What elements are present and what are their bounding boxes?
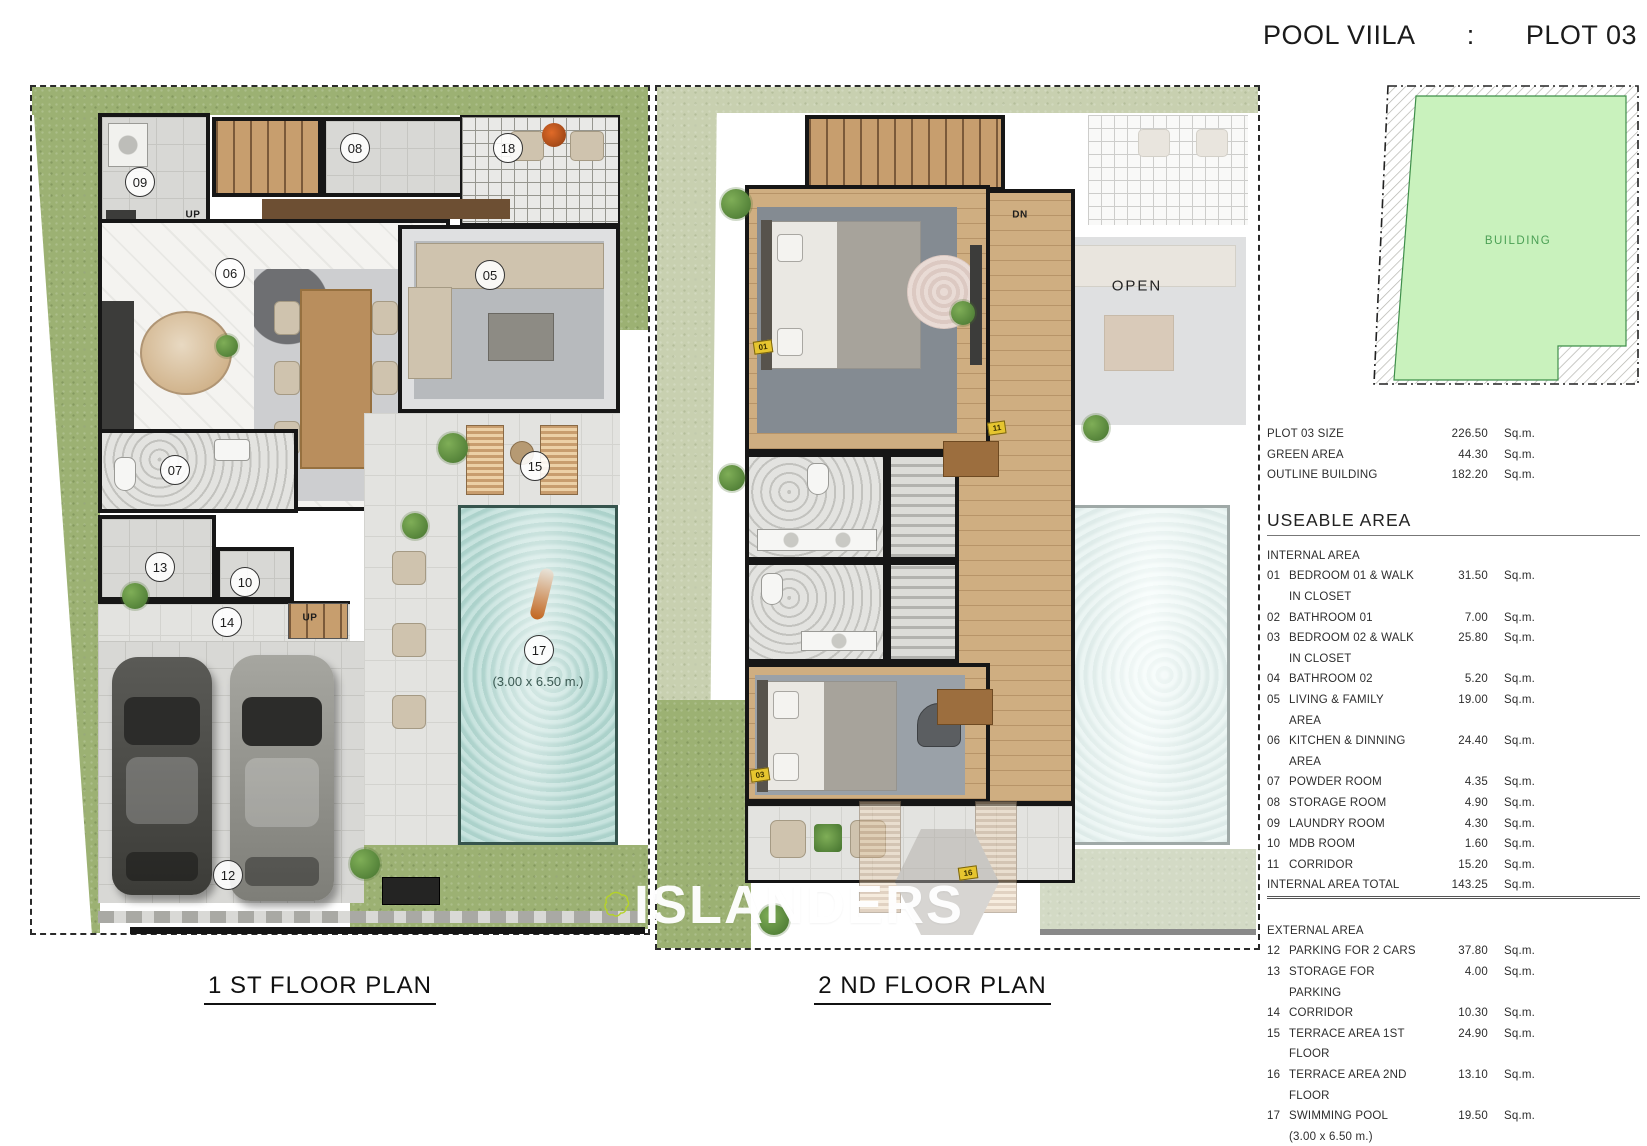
second-floor-label: 2 ND FLOOR PLAN xyxy=(760,972,1105,1005)
car-windshield xyxy=(124,697,200,745)
plant xyxy=(122,583,148,609)
deck-armchair xyxy=(392,551,426,585)
room-marker: UP xyxy=(186,210,201,221)
area-row: 07POWDER ROOM4.35Sq.m. xyxy=(1267,772,1640,793)
plant xyxy=(719,465,745,491)
pool-dimensions: (3.00 x 6.50 m.) xyxy=(461,674,615,689)
room-marker: 16 xyxy=(958,865,979,881)
outdoor-seat xyxy=(570,131,604,161)
ghost-living xyxy=(1046,237,1246,425)
room-marker: 17 xyxy=(524,635,554,665)
floor-plan-sheet: POOL VIILA : PLOT 03 xyxy=(0,0,1647,1146)
first-floor-plan: 17 (3.00 x 6.50 m.) 09UP0818060507131014… xyxy=(30,85,650,935)
washing-machine xyxy=(108,123,148,167)
pool-deck xyxy=(364,505,458,845)
plant xyxy=(951,301,975,325)
area-row: 09LAUNDRY ROOM4.30Sq.m. xyxy=(1267,814,1640,835)
sofa xyxy=(416,243,604,289)
dining-chair xyxy=(372,361,398,395)
terrace-armchair xyxy=(770,820,806,858)
site-key-svg: BUILDING xyxy=(1368,84,1640,386)
deck-chair xyxy=(466,425,504,495)
dining-chair xyxy=(274,301,300,335)
first-floor-label: 1 ST FLOOR PLAN xyxy=(150,972,490,1005)
bbq-grill xyxy=(382,877,440,905)
room-marker: DN xyxy=(1012,210,1027,221)
ghost-terrace xyxy=(855,725,1041,935)
boundary-wall xyxy=(130,927,645,934)
plant xyxy=(350,849,380,879)
dining-chair xyxy=(372,301,398,335)
ghost-pool xyxy=(1068,505,1230,845)
area-row: 03BEDROOM 02 & WALK IN CLOSET25.80Sq.m. xyxy=(1267,628,1640,669)
toilet xyxy=(761,573,783,605)
area-row: 15TERRACE AREA 1ST FLOOR24.90Sq.m. xyxy=(1267,1024,1640,1065)
ghost-table xyxy=(1104,315,1174,371)
area-row: 16TERRACE AREA 2ND FLOOR13.10Sq.m. xyxy=(1267,1065,1640,1106)
area-row: 04BATHROOM 025.20Sq.m. xyxy=(1267,669,1640,690)
sink xyxy=(214,439,250,461)
living-family-05 xyxy=(398,225,620,413)
pillow xyxy=(777,234,803,262)
title-project: POOL VIILA xyxy=(1263,20,1416,51)
car-rear-window xyxy=(245,857,320,887)
outdoor-seat xyxy=(1196,129,1228,157)
desk xyxy=(937,689,993,725)
car xyxy=(230,655,334,901)
grass-top xyxy=(657,87,1258,113)
room-marker: 05 xyxy=(475,260,505,290)
internal-area-label: INTERNAL AREA xyxy=(1267,546,1640,567)
area-row: 17SWIMMING POOL (3.00 x 6.50 m.)19.50Sq.… xyxy=(1267,1106,1640,1146)
summary-row: OUTLINE BUILDING182.20Sq.m. xyxy=(1267,465,1640,486)
toilet xyxy=(807,463,829,495)
outdoor-seat xyxy=(1138,129,1170,157)
pillow xyxy=(773,753,799,781)
room-marker: 07 xyxy=(160,455,190,485)
internal-area-total: INTERNAL AREA TOTAL 143.25 Sq.m. xyxy=(1267,875,1640,899)
toilet xyxy=(114,457,136,491)
deck-armchair xyxy=(392,623,426,657)
car-roof xyxy=(126,757,198,824)
plant xyxy=(438,433,468,463)
car-roof xyxy=(245,758,320,827)
plant xyxy=(759,905,789,935)
walk-in-closet xyxy=(887,561,959,663)
deck-armchair xyxy=(392,695,426,729)
driveway-dashes xyxy=(98,911,643,923)
plant xyxy=(216,335,238,357)
console-cabinet xyxy=(262,199,510,219)
bed xyxy=(771,221,921,369)
area-row: 10MDB ROOM1.60Sq.m. xyxy=(1267,834,1640,855)
second-floor-plan: DNOPEN01110316 xyxy=(655,85,1260,950)
swimming-pool-17: 17 (3.00 x 6.50 m.) xyxy=(458,505,618,845)
terrace-15 xyxy=(364,413,620,505)
desk xyxy=(943,441,999,477)
dining-chair xyxy=(274,361,300,395)
room-marker: UP xyxy=(303,613,318,624)
dining-table xyxy=(300,289,372,469)
summary-row: GREEN AREA44.30Sq.m. xyxy=(1267,445,1640,466)
powder-room-07 xyxy=(98,429,298,513)
vanity-sink xyxy=(801,631,877,651)
pool-float xyxy=(529,567,555,621)
plot-summary: PLOT 03 SIZE226.50Sq.m. GREEN AREA44.30S… xyxy=(1267,424,1640,486)
room-marker: OPEN xyxy=(1112,278,1163,295)
room-marker: 06 xyxy=(215,258,245,288)
room-marker: 10 xyxy=(230,567,260,597)
staircase-down xyxy=(805,115,1005,191)
deck-chair xyxy=(859,801,901,913)
internal-area-list: 01BEDROOM 01 & WALK IN CLOSET31.50Sq.m. … xyxy=(1267,566,1640,875)
useable-area-header: USEABLE AREA xyxy=(1267,510,1640,536)
bathroom-02 xyxy=(745,561,887,663)
pillow xyxy=(773,691,799,719)
ghost-washing-area xyxy=(1088,115,1248,225)
area-data-panel: PLOT 03 SIZE226.50Sq.m. GREEN AREA44.30S… xyxy=(1267,424,1640,1146)
room-marker: 12 xyxy=(213,860,243,890)
area-row: 11CORRIDOR15.20Sq.m. xyxy=(1267,855,1640,876)
room-marker: 13 xyxy=(145,552,175,582)
staircase-up xyxy=(212,117,322,197)
area-row: 08STORAGE ROOM4.90Sq.m. xyxy=(1267,793,1640,814)
vanity-double-sink xyxy=(757,529,877,551)
area-row: 01BEDROOM 01 & WALK IN CLOSET31.50Sq.m. xyxy=(1267,566,1640,607)
car-rear-window xyxy=(126,852,198,881)
room-marker: 14 xyxy=(212,607,242,637)
area-row: 13STORAGE FOR PARKING4.00Sq.m. xyxy=(1267,962,1640,1003)
summary-row: PLOT 03 SIZE226.50Sq.m. xyxy=(1267,424,1640,445)
grass-bottom-left xyxy=(657,700,751,948)
outdoor-table xyxy=(542,123,566,147)
coffee-table xyxy=(488,313,554,361)
room-marker: 01 xyxy=(753,339,774,355)
area-row: 14CORRIDOR10.30Sq.m. xyxy=(1267,1003,1640,1024)
room-marker: 18 xyxy=(493,133,523,163)
area-row: 06KITCHEN & DINNING AREA24.40Sq.m. xyxy=(1267,731,1640,772)
plant xyxy=(721,189,751,219)
pillow xyxy=(777,328,803,356)
room-marker: 03 xyxy=(750,767,771,783)
grass-top-right xyxy=(618,87,648,330)
title-plot: PLOT 03 xyxy=(1526,20,1637,51)
bathroom-01 xyxy=(745,453,887,561)
car xyxy=(112,657,212,895)
external-area-list: 12PARKING FOR 2 CARS37.80Sq.m. 13STORAGE… xyxy=(1267,941,1640,1146)
entry-steps xyxy=(288,603,348,639)
car-windshield xyxy=(242,697,321,746)
sheet-title: POOL VIILA : PLOT 03 xyxy=(1263,20,1637,51)
grass-top xyxy=(32,87,648,115)
boundary-wall xyxy=(1040,929,1256,935)
plant xyxy=(1083,415,1109,441)
title-separator: : xyxy=(1467,20,1475,51)
room-marker: 11 xyxy=(987,420,1007,435)
building-footprint-label: BUILDING xyxy=(1485,235,1551,247)
room-marker: 15 xyxy=(520,451,550,481)
plant xyxy=(402,513,428,539)
area-row: 02BATHROOM 017.00Sq.m. xyxy=(1267,608,1640,629)
external-area-label: EXTERNAL AREA xyxy=(1267,921,1640,942)
area-row: 12PARKING FOR 2 CARS37.80Sq.m. xyxy=(1267,941,1640,962)
area-row: 05LIVING & FAMILY AREA19.00Sq.m. xyxy=(1267,690,1640,731)
room-marker: 08 xyxy=(340,133,370,163)
terrace-plant-table xyxy=(814,824,842,852)
sofa-chaise xyxy=(408,287,452,379)
room-marker: 09 xyxy=(125,167,155,197)
site-key-diagram: BUILDING xyxy=(1368,84,1640,386)
